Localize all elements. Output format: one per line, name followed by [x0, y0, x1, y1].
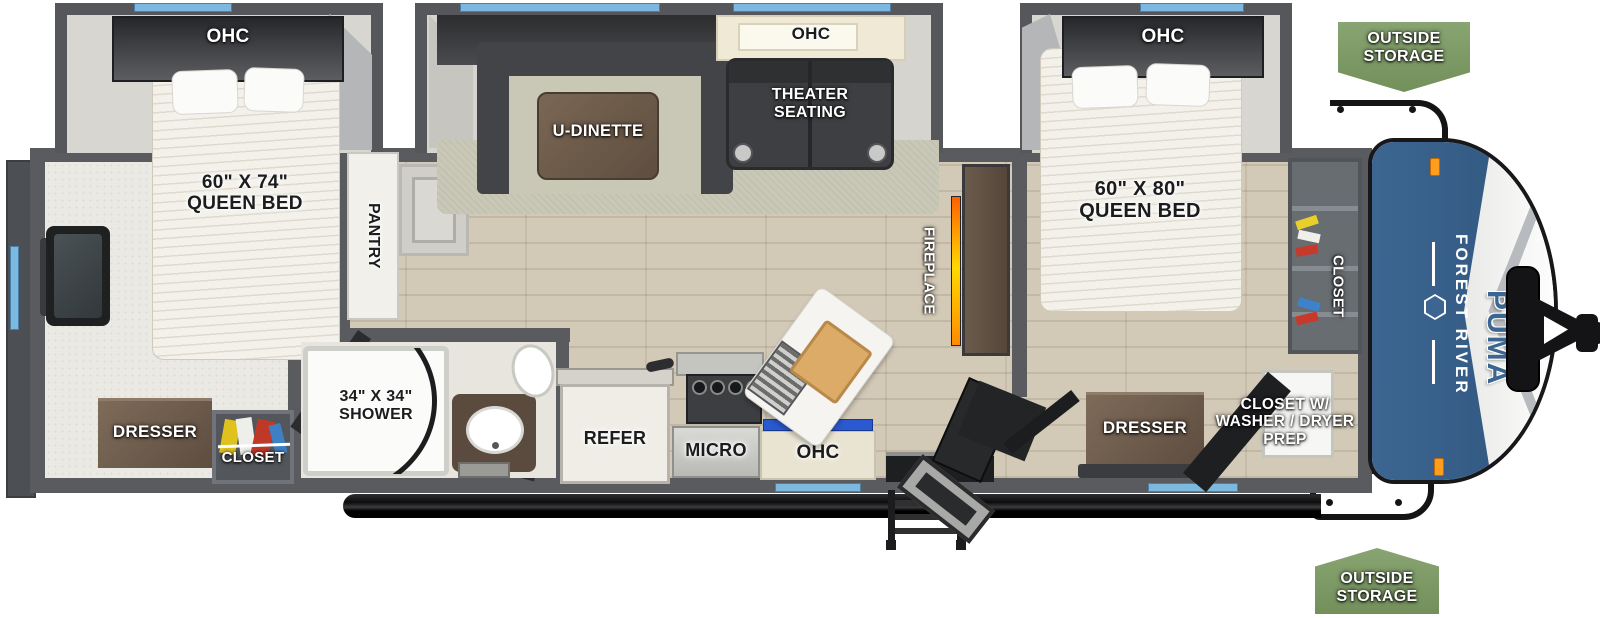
washer-dryer-label: CLOSET W/ WASHER / DRYER PREP	[1210, 396, 1360, 448]
theater-window	[733, 3, 891, 12]
front-ohc-label: OHC	[1062, 26, 1264, 47]
tv-screen	[54, 234, 102, 318]
pillow	[243, 67, 304, 113]
brand-accent-dash	[1432, 242, 1435, 286]
theater-label: THEATER SEATING	[726, 86, 894, 122]
stove-burner	[728, 380, 743, 395]
rear-bed-label: 60" X 74" QUEEN BED	[152, 172, 338, 215]
step-foot	[956, 540, 966, 550]
front-bed-label: 60" X 80" QUEEN BED	[1040, 178, 1240, 223]
cap-marker-light	[1430, 158, 1440, 176]
rear-ohc-label: OHC	[112, 26, 344, 47]
step-foot	[886, 540, 896, 550]
front-slide-window	[1140, 3, 1244, 12]
rear-window	[10, 246, 19, 330]
shower-label: 34" X 34" SHOWER	[303, 388, 449, 424]
front-wardrobe-label: CLOSET	[1326, 236, 1348, 336]
pillow	[1071, 65, 1138, 109]
cap-marker-light	[1434, 458, 1444, 476]
pillow	[171, 69, 238, 115]
theater-cupholder	[867, 143, 887, 163]
frame-bolt	[1337, 106, 1344, 113]
frame-bolt	[1409, 106, 1416, 113]
rear-dresser-label: DRESSER	[98, 422, 212, 441]
pantry-label: PANTRY	[347, 152, 399, 320]
rear-closet-label: CLOSET	[212, 450, 294, 467]
bath-step	[458, 462, 510, 478]
dinette-window	[460, 3, 660, 12]
forest-river-logo-inner	[1426, 296, 1444, 318]
wardrobe-shelf	[1292, 266, 1358, 271]
microwave-label: MICRO	[672, 440, 760, 460]
brand-accent-dash	[1432, 340, 1435, 384]
outside-storage-bottom-label: OUTSIDE STORAGE	[1315, 570, 1439, 606]
rear-slide-window	[134, 3, 232, 12]
kitchen-bottom-window	[775, 483, 861, 492]
theater-cupholder	[733, 143, 753, 163]
pillow	[1145, 63, 1210, 107]
sink-faucet	[492, 442, 499, 449]
stove-burner	[692, 380, 707, 395]
hitch-coupler-ball	[1592, 322, 1600, 344]
front-dresser-label: DRESSER	[1086, 418, 1204, 437]
fireplace-label: FIREPLACE	[916, 196, 940, 346]
bedroom-tv	[46, 226, 110, 326]
frame-bolt	[1326, 499, 1333, 506]
dinette-label: U-DINETTE	[537, 122, 659, 140]
fireplace-flame-strip	[951, 196, 961, 346]
kitchen-counter	[676, 352, 764, 376]
theater-ohc-label: OHC	[716, 24, 906, 43]
living-bedroom-wall	[1012, 162, 1027, 397]
frame-bolt	[1395, 499, 1402, 506]
stove-burner	[710, 380, 725, 395]
refrigerator-label: REFER	[560, 428, 670, 448]
wardrobe-shelf	[1292, 206, 1358, 211]
floorplan-diagram: OHC 60" X 74" QUEEN BED DRESSER CLOSET P…	[0, 0, 1600, 618]
chassis-rail	[343, 494, 1321, 518]
tongue-jack	[1506, 266, 1540, 392]
entertainment-center	[962, 164, 1010, 356]
outside-storage-top-label: OUTSIDE STORAGE	[1338, 30, 1470, 66]
manufacturer-name: FOREST RIVER	[1448, 200, 1474, 430]
step-rung	[895, 528, 957, 534]
front-bedroom-bottom-window	[1148, 483, 1238, 492]
